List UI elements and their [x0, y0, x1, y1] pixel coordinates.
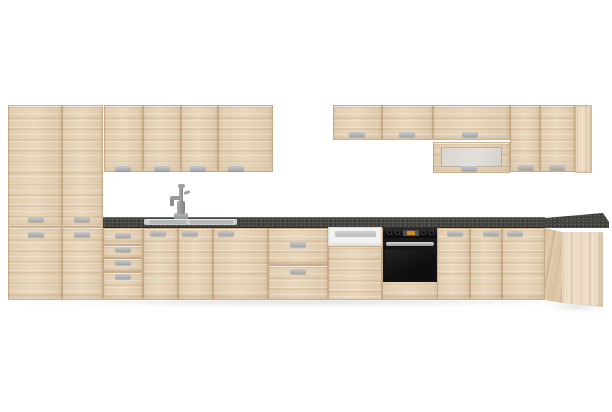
drawer-handle: [115, 247, 131, 252]
wall-end-panel: [575, 105, 592, 173]
drawer-handle: [115, 233, 131, 238]
faucet-body: [177, 201, 185, 214]
drawer-handle: [290, 242, 306, 247]
tall-cabinet-left-upper-door: [8, 105, 62, 227]
oven-knob: [395, 230, 400, 235]
oven-knob: [387, 230, 392, 235]
drawer-handle: [290, 269, 306, 274]
dishwasher-control-panel: [328, 227, 382, 246]
oven-control-panel: [383, 228, 437, 238]
faucet: [166, 183, 192, 219]
cabinet-handle: [182, 231, 198, 236]
wide-base-door: [213, 228, 268, 300]
drawer-handle: [115, 274, 131, 279]
cabinet-handle: [74, 217, 90, 222]
cabinet-handle: [483, 231, 499, 236]
sink-basin-left: [150, 220, 186, 224]
cabinet-handle: [190, 166, 206, 171]
cabinet-handle: [74, 232, 90, 237]
cabinet-handle: [461, 166, 477, 171]
cabinet-handle: [150, 231, 166, 236]
base-door: [437, 228, 470, 300]
wall-cabinet-door: [143, 105, 181, 172]
faucet-spout-tip: [170, 199, 174, 206]
cabinet-handle: [28, 217, 44, 222]
faucet-top: [178, 184, 185, 188]
dishwasher-handle-groove: [335, 231, 376, 237]
wall-cabinet-door: [218, 105, 273, 172]
oven-display: [407, 231, 415, 235]
cabinet-handle: [115, 166, 131, 171]
wall-cabinet-door: [510, 105, 540, 172]
cabinet-handle: [154, 166, 170, 171]
sink-basin-right: [190, 220, 233, 224]
wall-cabinet-door: [540, 105, 575, 172]
cabinet-handle: [462, 132, 478, 137]
corner-base-angled-front: [545, 228, 562, 306]
drawer-handle: [115, 260, 131, 265]
oven-knob: [429, 230, 434, 235]
oven-knob: [421, 230, 426, 235]
cabinet-handle: [518, 165, 534, 170]
oven-handle: [386, 242, 434, 246]
base-door: [502, 228, 545, 300]
oven: [383, 228, 437, 282]
tall-cabinet-left-lower-door: [8, 227, 62, 300]
cabinet-handle: [549, 165, 565, 170]
dishwasher-furniture-panel: [328, 246, 382, 300]
frosted-glass-panel: [441, 147, 502, 167]
corner-worktop: [541, 211, 610, 229]
oven-door-glass: [385, 250, 435, 279]
cabinet-handle: [399, 132, 415, 137]
cabinet-handle: [28, 232, 44, 237]
faucet-lever: [184, 190, 191, 195]
cabinet-handle: [228, 166, 244, 171]
tall-cabinet-right-upper-door: [62, 105, 103, 227]
cabinet-handle: [218, 231, 234, 236]
base-door: [470, 228, 502, 300]
cabinet-handle: [507, 231, 523, 236]
cabinet-handle: [349, 132, 365, 137]
cabinet-handle: [447, 231, 463, 236]
corner-base-front-panel: [562, 232, 603, 307]
tall-cabinet-right-lower-door: [62, 227, 103, 300]
sink-base-door: [143, 228, 178, 300]
dishwasher: [328, 227, 382, 300]
sink-base-door: [178, 228, 213, 300]
sink: [144, 219, 237, 225]
oven-display-panel: [403, 230, 419, 236]
wall-cabinet-door: [181, 105, 218, 172]
wall-cabinet-door: [104, 105, 143, 172]
kitchen-product-image: [0, 0, 612, 412]
